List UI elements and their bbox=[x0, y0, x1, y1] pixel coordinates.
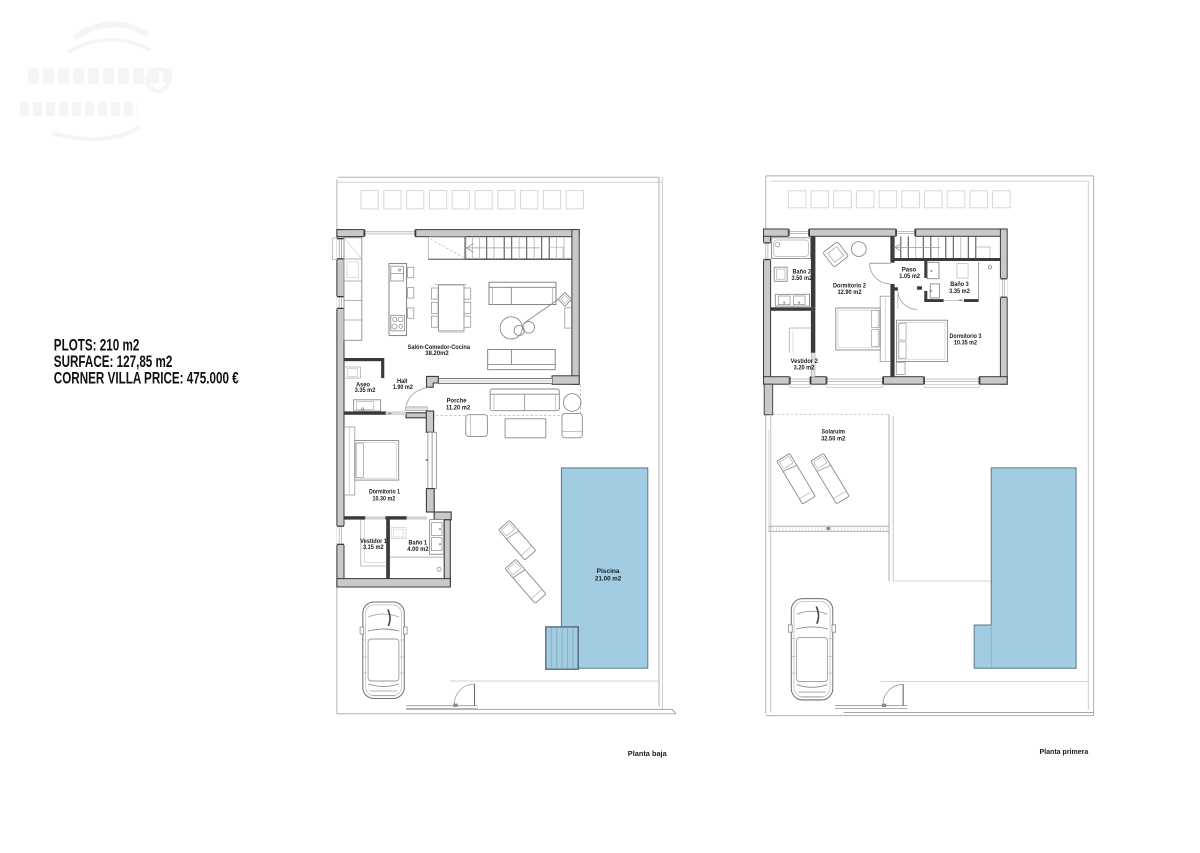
svg-text:11.20 m2: 11.20 m2 bbox=[446, 404, 470, 411]
svg-text:4.00 m2: 4.00 m2 bbox=[407, 546, 428, 553]
svg-text:Piscina: Piscina bbox=[597, 568, 620, 575]
svg-text:32.50 m2: 32.50 m2 bbox=[821, 435, 845, 442]
svg-text:3.50 m2: 3.50 m2 bbox=[791, 275, 812, 282]
svg-text:10.30 m2: 10.30 m2 bbox=[373, 496, 396, 503]
svg-text:Planta baja: Planta baja bbox=[628, 749, 668, 758]
svg-text:Planta primera: Planta primera bbox=[1040, 747, 1090, 756]
svg-text:21.00 m2: 21.00 m2 bbox=[595, 576, 621, 583]
svg-text:Porche: Porche bbox=[447, 397, 467, 404]
svg-text:12.90 m2: 12.90 m2 bbox=[838, 289, 862, 296]
svg-text:CORNER VILLA PRICE: 475.000 €: CORNER VILLA PRICE: 475.000 € bbox=[54, 369, 239, 387]
svg-text:10.35 m2: 10.35 m2 bbox=[954, 340, 977, 347]
svg-text:3.35 m2: 3.35 m2 bbox=[355, 387, 376, 394]
svg-text:SURFACE: 127,85 m2: SURFACE: 127,85 m2 bbox=[54, 352, 173, 370]
svg-text:3.15 m2: 3.15 m2 bbox=[363, 544, 384, 551]
svg-text:3.20 m2: 3.20 m2 bbox=[794, 365, 815, 372]
svg-text:38.20m2: 38.20m2 bbox=[425, 350, 449, 357]
svg-text:1.90 m2: 1.90 m2 bbox=[393, 384, 413, 391]
svg-text:3.35 m2: 3.35 m2 bbox=[949, 288, 970, 295]
svg-text:Dormitorio 1: Dormitorio 1 bbox=[369, 488, 400, 495]
svg-text:1.05 m2: 1.05 m2 bbox=[899, 273, 920, 280]
